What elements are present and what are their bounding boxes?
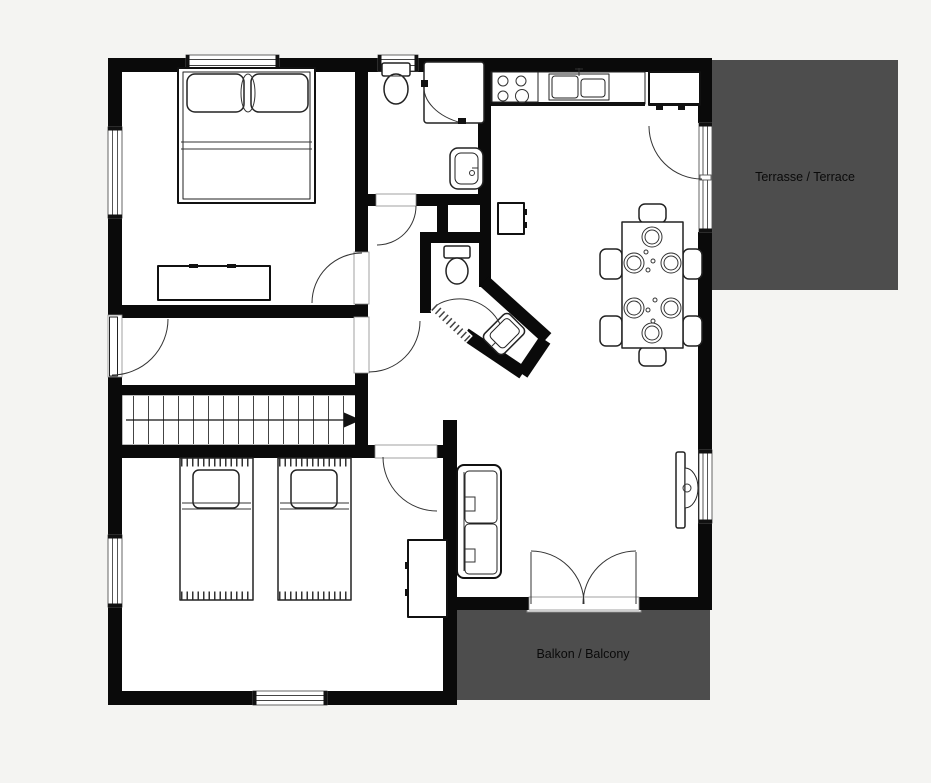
window-bedroom2-left [108,535,122,607]
terrace-door-glass [699,123,712,232]
pillow [291,470,337,508]
dining-chair [639,204,666,223]
kitchen-cabinet [649,72,700,110]
single-bed [278,458,351,600]
window-bedroom1-left [108,127,122,218]
corner-shower [421,62,484,124]
dining-chair [683,249,702,279]
dining-table [622,222,683,348]
pillow [251,74,308,112]
wc-toilet [444,246,470,284]
wardrobe [405,540,447,617]
window-bedroom2-bottom [253,691,327,705]
dining-chair [639,347,666,366]
toilet [382,63,410,104]
stove-4-burners [492,72,538,103]
sofa [457,465,501,578]
window-living-right [699,450,712,523]
pillow [187,74,244,112]
dining-chair [683,316,702,346]
dining-chair [600,316,622,346]
balcony-label: Balkon / Balcony [536,647,630,661]
stairs [122,395,361,445]
washbasin [450,148,483,189]
balcony-area: Balkon / Balcony [455,610,710,700]
single-bed [180,458,253,600]
double-bed [178,68,315,203]
dresser [158,264,270,300]
terrace-label: Terrasse / Terrace [755,170,855,184]
terrace-area: Terrasse / Terrace [712,60,898,290]
floorplan-canvas: Terrasse / Terrace Balkon / Balcony [0,0,931,783]
mini-cabinet [498,203,527,234]
dining-chair [600,249,622,279]
pillow [193,470,239,508]
kitchen-counter [491,68,645,106]
